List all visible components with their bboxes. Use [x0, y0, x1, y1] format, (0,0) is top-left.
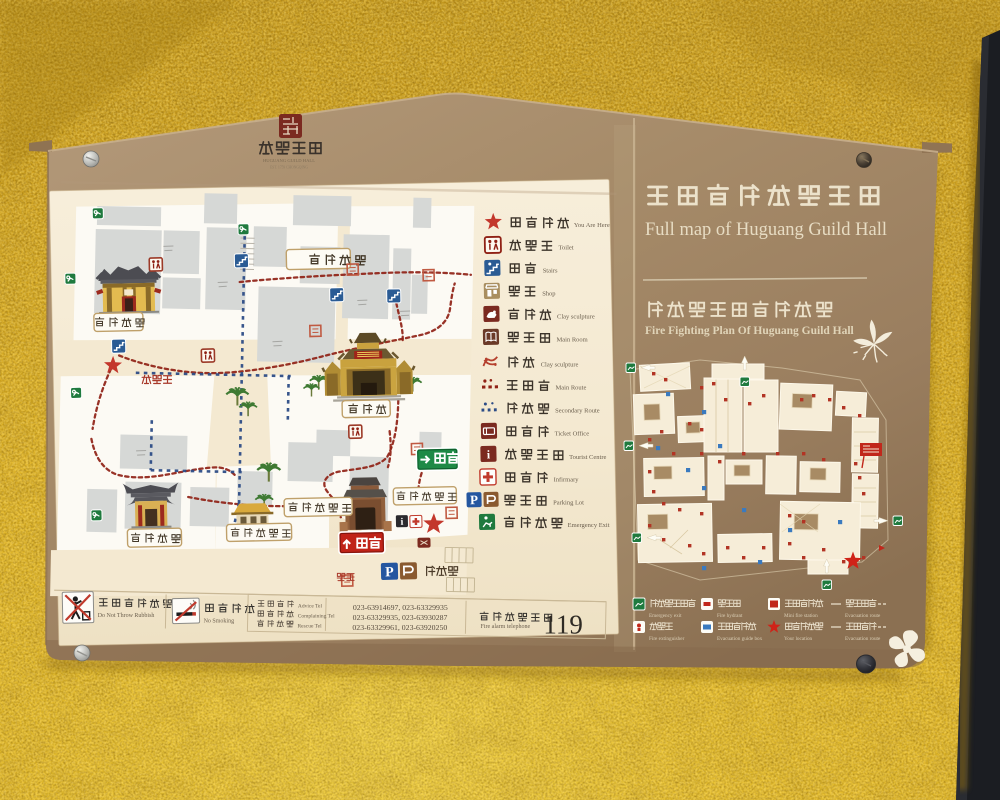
svg-text:Fire extinguisher: Fire extinguisher	[649, 636, 685, 642]
svg-text:P: P	[470, 492, 478, 507]
svg-text:Your location: Your location	[784, 636, 813, 642]
svg-text:Main Route: Main Route	[556, 385, 587, 392]
svg-text:Advice Tel: Advice Tel	[298, 603, 323, 609]
svg-text:Do Not Throw Rubbish: Do Not Throw Rubbish	[98, 613, 155, 619]
svg-text:Evacuation guide box: Evacuation guide box	[717, 636, 763, 642]
svg-text:You Are Here: You Are Here	[574, 222, 610, 229]
svg-text:Full map of Huguang Guild Hall: Full map of Huguang Guild Hall	[645, 220, 887, 240]
svg-text:Clay sculpture: Clay sculpture	[557, 314, 595, 321]
svg-text:Complaining Tel: Complaining Tel	[298, 613, 335, 619]
svg-text:Stairs: Stairs	[543, 267, 558, 274]
svg-text:Fire alarm telephone: Fire alarm telephone	[481, 624, 531, 630]
svg-text:HUGUANG GUILD HALL: HUGUANG GUILD HALL	[263, 158, 315, 163]
svg-text:Evacuation route: Evacuation route	[845, 613, 881, 619]
svg-text:Rescue Tel: Rescue Tel	[298, 623, 323, 629]
svg-text:i: i	[400, 517, 403, 528]
svg-text:Infirmary: Infirmary	[554, 477, 580, 484]
svg-text:Emergency exit: Emergency exit	[649, 613, 682, 619]
svg-text:Clay sculpture: Clay sculpture	[541, 361, 579, 368]
svg-text:Secondary Route: Secondary Route	[555, 408, 600, 415]
svg-text:Emergency Exit: Emergency Exit	[568, 522, 610, 529]
svg-text:119: 119	[543, 609, 583, 639]
svg-text:Toilet: Toilet	[559, 245, 574, 252]
svg-text:P: P	[385, 565, 394, 580]
svg-text:Evacuation route: Evacuation route	[845, 636, 881, 642]
svg-text:Shop: Shop	[542, 290, 555, 297]
svg-text:EST. 1759 CHONGQING: EST. 1759 CHONGQING	[270, 166, 308, 170]
svg-text:023-63329935, 023-63930287: 023-63329935, 023-63930287	[353, 613, 448, 622]
svg-text:023-63914697, 023-63329935: 023-63914697, 023-63329935	[353, 603, 448, 612]
svg-text:Parking Lot: Parking Lot	[553, 500, 584, 507]
svg-text:Ticket Office: Ticket Office	[555, 431, 590, 438]
svg-text:No Smoking: No Smoking	[204, 618, 235, 624]
svg-text:Fire Fighting Plan Of Huguang: Fire Fighting Plan Of Huguang Guild Hall	[645, 325, 854, 337]
svg-text:Main Room: Main Room	[557, 337, 588, 344]
svg-text:Fire hydrant: Fire hydrant	[717, 613, 743, 619]
svg-text:Tourist Centre: Tourist Centre	[569, 454, 606, 461]
svg-text:023-63329961, 023-63920250: 023-63329961, 023-63920250	[352, 623, 447, 632]
svg-text:Mini fire station: Mini fire station	[784, 612, 818, 619]
